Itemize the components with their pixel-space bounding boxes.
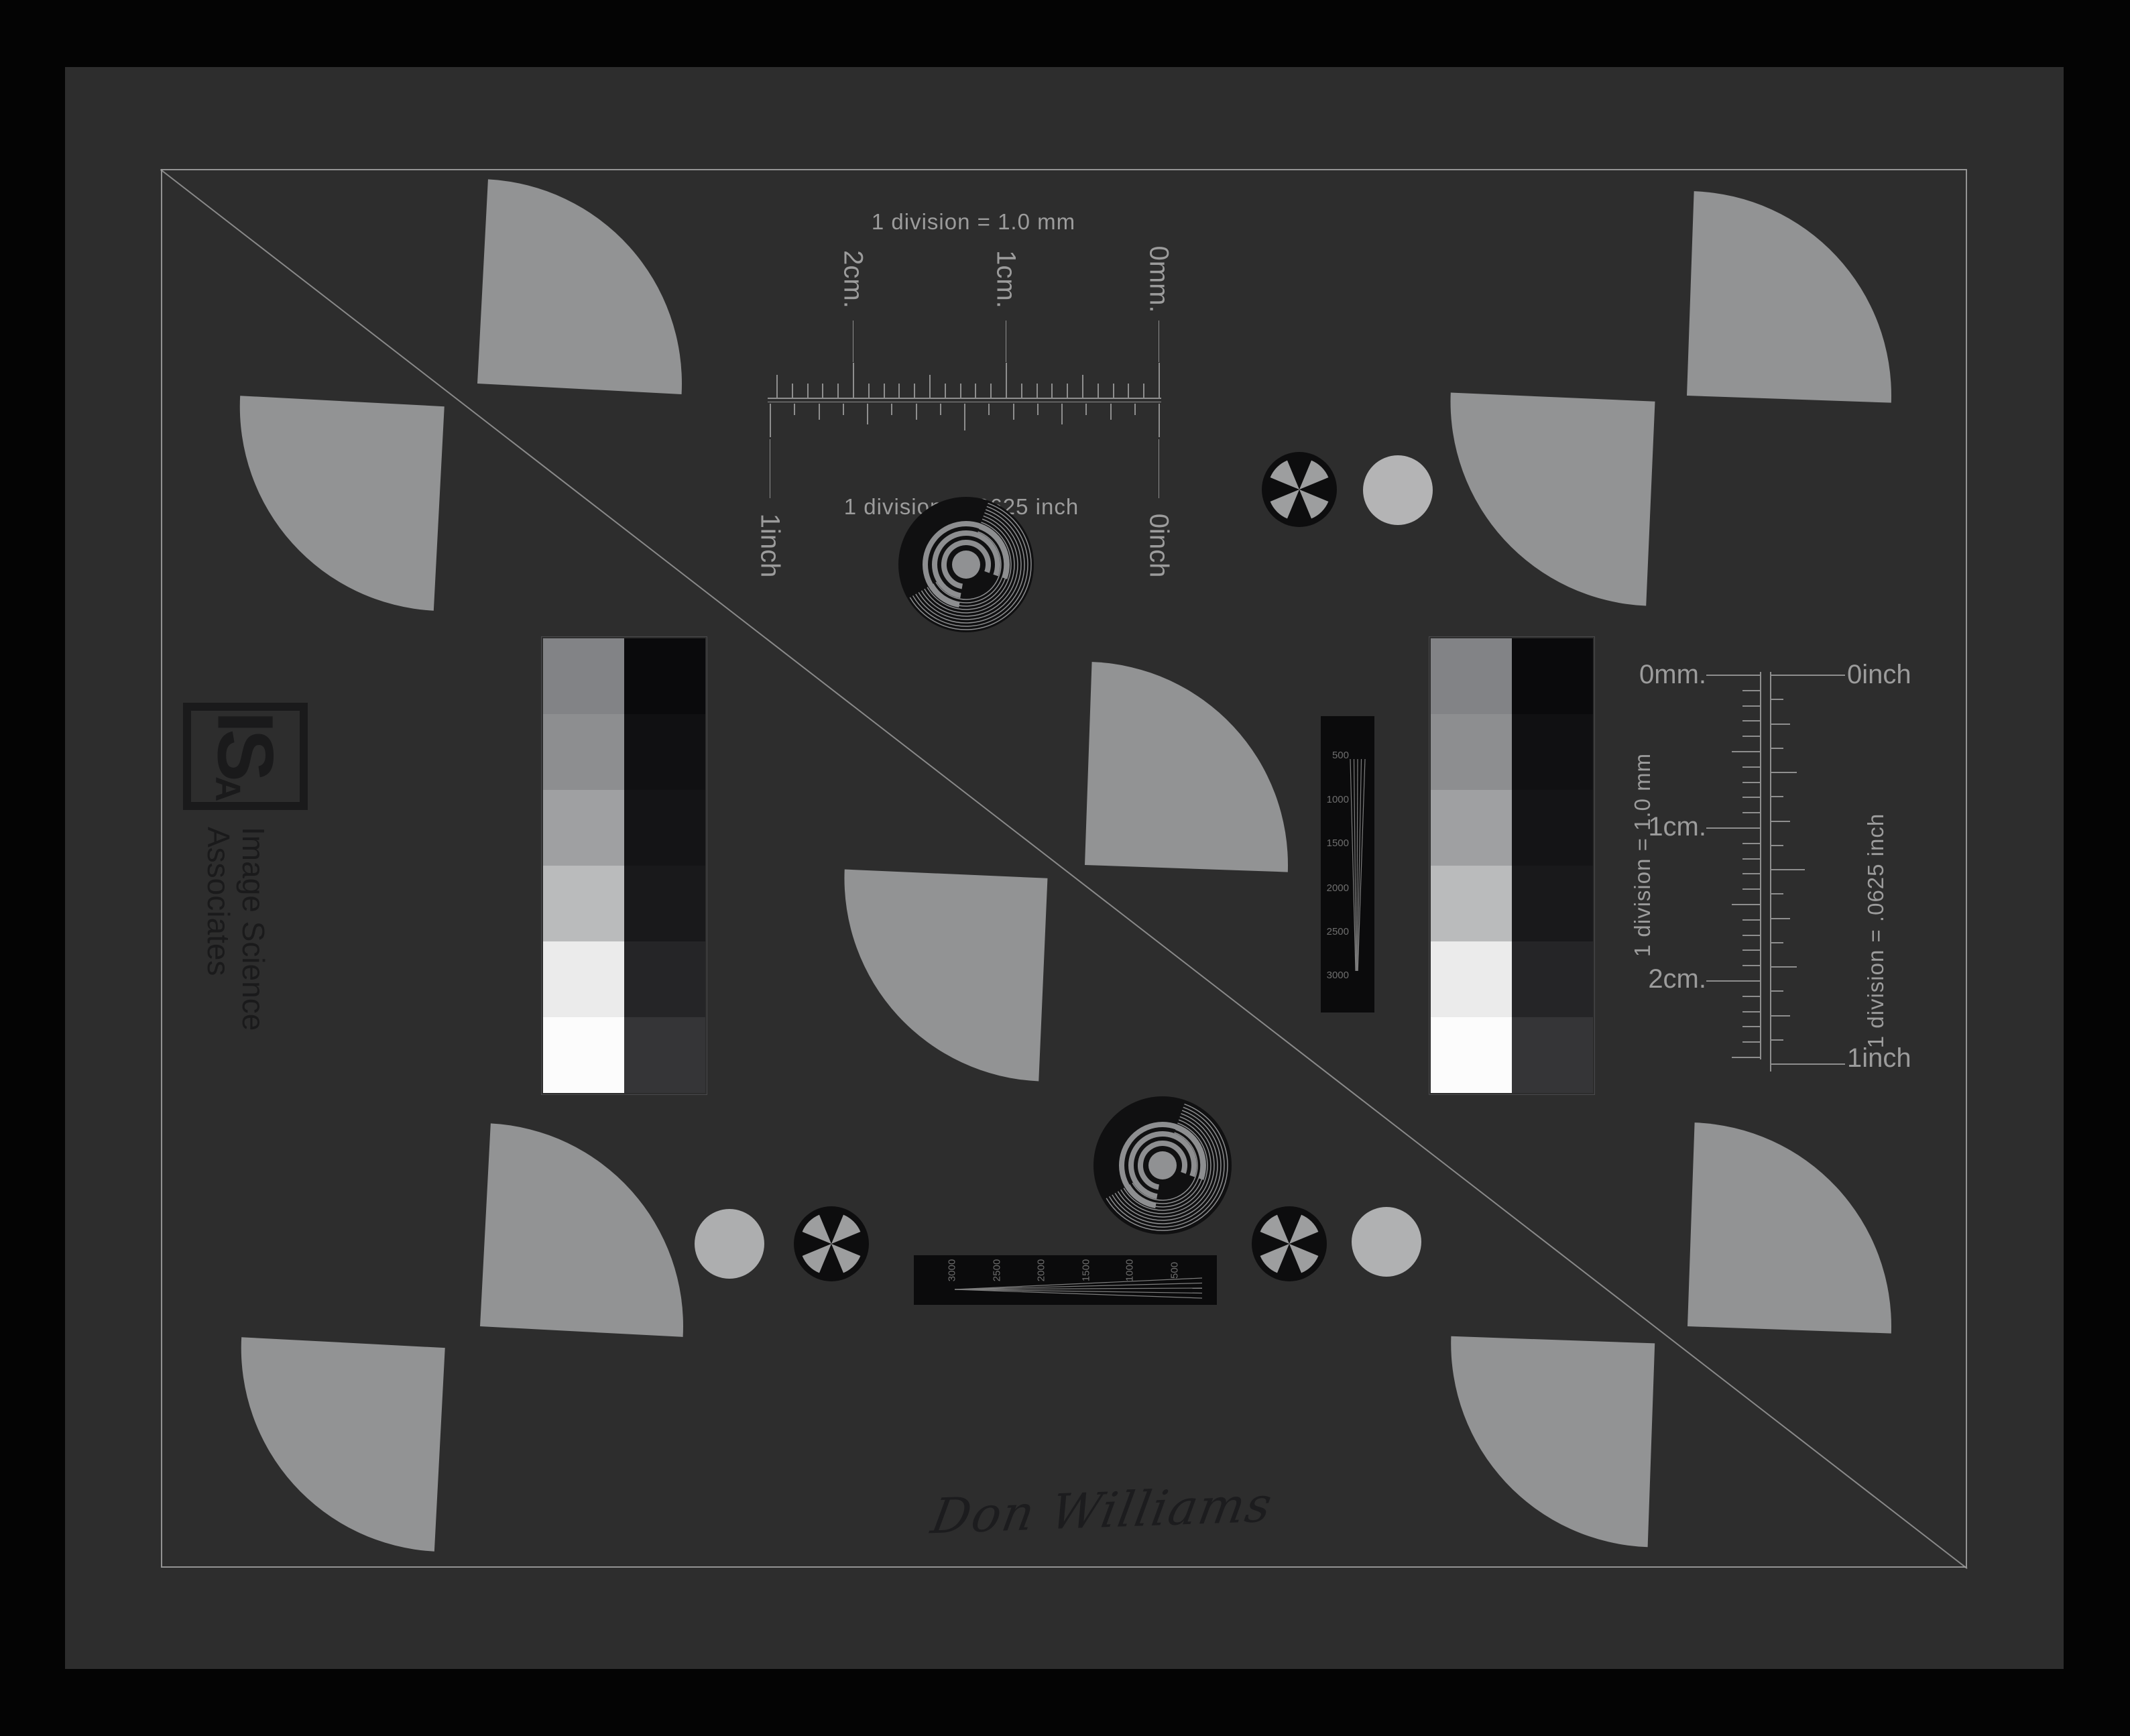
ruler-leader-line — [1159, 321, 1159, 362]
ruler-tick — [770, 404, 771, 437]
right-ruler-label-0mm: 0mm. — [1599, 660, 1706, 690]
ruler-tick — [1037, 404, 1039, 415]
grayscale-step — [543, 790, 624, 866]
ruler-tick — [1067, 384, 1068, 398]
ruler-tick — [1770, 796, 1783, 797]
ruler-baseline — [1760, 672, 1761, 1059]
ruler-leader-line — [1159, 439, 1159, 498]
ruler-tick — [1770, 675, 1845, 676]
ruler-tick — [794, 404, 795, 415]
ruler-tick — [945, 384, 946, 398]
ruler-tick — [1742, 797, 1760, 798]
ruler-tick — [868, 384, 870, 398]
ruler-leader-line — [1006, 321, 1006, 362]
gray-dot-target — [1363, 455, 1433, 525]
company-name-line1: Image Science — [236, 827, 271, 1035]
ruler-tick — [1110, 404, 1112, 420]
ruler-tick — [1770, 869, 1805, 870]
fan-shape — [229, 396, 445, 611]
ruler-baseline — [768, 402, 1161, 402]
ruler-tick — [843, 404, 844, 415]
top-ruler-label-0mm: 0mm. — [1144, 239, 1174, 320]
ruler-tick — [776, 375, 778, 398]
ruler-tick — [1706, 827, 1760, 829]
ruler-tick — [867, 404, 868, 424]
ruler-tick — [1742, 720, 1760, 721]
fan-shape — [1444, 1336, 1655, 1547]
ruler-tick — [1770, 1015, 1790, 1017]
right-ruler-caption-inch: 1 division = .0625 inch — [1863, 803, 1889, 1058]
ruler-tick — [1742, 965, 1760, 966]
ruler-tick — [1742, 766, 1760, 768]
ruler-tick — [1742, 935, 1760, 936]
grayscale-step — [543, 941, 624, 1017]
ruler-tick — [1770, 893, 1783, 894]
ruler-tick — [1770, 699, 1783, 700]
ruler-tick — [1061, 404, 1063, 424]
fan-shape — [1688, 1122, 1898, 1333]
top-ruler-label-0inch: 0inch — [1144, 502, 1174, 589]
sector-star-target — [792, 1205, 870, 1283]
isa-logo-initials: IS — [206, 711, 285, 778]
grayscale-step — [1431, 790, 1512, 866]
ruler-tick — [1742, 873, 1760, 874]
fan-shape — [836, 870, 1048, 1082]
ruler-tick — [1013, 404, 1014, 420]
ruler-tick — [807, 384, 809, 398]
grayscale-step — [1431, 714, 1512, 790]
ruler-tick — [884, 384, 885, 398]
ruler-tick — [1742, 919, 1760, 921]
gray-dot-target — [695, 1209, 764, 1279]
ruler-tick — [822, 384, 823, 398]
author-signature: Don Williams — [924, 1478, 1218, 1562]
ruler-tick — [837, 384, 839, 398]
ruler-tick — [1113, 384, 1114, 398]
ruler-tick — [1742, 1041, 1760, 1043]
ruler-tick — [891, 404, 892, 415]
ruler-tick — [1770, 990, 1783, 992]
ruler-tick — [1742, 736, 1760, 737]
grayscale-step — [624, 714, 705, 790]
resolution-bar-lines — [912, 1254, 1220, 1314]
calibration-target-scan: 1 division = 1.0 mm 2cm. 1cm. 0mm. 1 div… — [0, 0, 2130, 1736]
grayscale-step — [543, 1017, 624, 1093]
sector-star-target — [1250, 1205, 1328, 1283]
ruler-tick — [1742, 888, 1760, 890]
grayscale-step — [1512, 638, 1593, 714]
ruler-tick — [1742, 782, 1760, 783]
grayscale-step — [1512, 941, 1593, 1017]
fan-shape — [1085, 662, 1295, 872]
company-name-line2: Associates — [201, 827, 236, 1035]
top-ruler-caption-mm: 1 division = 1.0 mm — [806, 209, 1141, 235]
grayscale-step — [1512, 714, 1593, 790]
ruler-tick — [1742, 1026, 1760, 1027]
ruler-tick — [1742, 690, 1760, 691]
ruler-tick — [1770, 966, 1797, 968]
ruler-tick — [819, 404, 820, 420]
grayscale-step — [624, 790, 705, 866]
ruler-tick — [990, 384, 992, 398]
ruler-tick — [1021, 384, 1022, 398]
sector-star-target — [1260, 451, 1338, 528]
ruler-tick — [1742, 843, 1760, 844]
ruler-tick — [1770, 821, 1790, 822]
company-name: Image Science Associates — [201, 827, 271, 1035]
grayscale-step — [624, 638, 705, 714]
grayscale-step — [624, 866, 705, 941]
fan-shape — [480, 1123, 693, 1336]
top-ruler-label-2cm: 2cm. — [838, 239, 868, 320]
ruler-tick — [1742, 812, 1760, 813]
ruler-tick — [1742, 858, 1760, 860]
ruler-tick — [1742, 705, 1760, 707]
right-ruler-label-2cm: 2cm. — [1599, 964, 1706, 994]
ruler-tick — [1134, 404, 1136, 415]
ruler-leader-line — [853, 321, 853, 362]
ring-spiral-target — [895, 494, 1037, 636]
gray-dot-target — [1352, 1207, 1421, 1277]
top-ruler-label-1inch: 1inch — [755, 502, 785, 589]
grayscale-step — [1431, 941, 1512, 1017]
fan-shape — [1441, 392, 1655, 605]
ruler-tick — [1706, 980, 1760, 982]
ruler-tick — [1770, 942, 1783, 943]
ruler-tick — [1082, 375, 1083, 398]
ruler-tick — [1085, 404, 1087, 415]
ruler-tick — [1770, 724, 1790, 725]
right-ruler-label-0inch: 0inch — [1847, 660, 1961, 690]
grayscale-step — [1431, 866, 1512, 941]
ruler-tick — [975, 384, 976, 398]
ruler-tick — [988, 404, 990, 415]
ruler-tick — [960, 384, 961, 398]
ruler-tick — [1732, 751, 1760, 752]
ruler-tick — [1732, 904, 1760, 905]
grayscale-step — [624, 1017, 705, 1093]
grayscale-step — [543, 638, 624, 714]
ruler-tick — [916, 404, 917, 420]
ruler-tick — [1770, 772, 1797, 773]
ruler-tick — [1159, 363, 1160, 398]
ruler-tick — [1742, 996, 1760, 997]
ruler-tick — [1770, 845, 1783, 846]
ruler-tick — [929, 375, 931, 398]
grayscale-step — [543, 866, 624, 941]
ruler-tick — [792, 384, 793, 398]
ruler-tick — [1051, 384, 1053, 398]
ruler-baseline — [768, 398, 1161, 399]
ruler-tick — [853, 363, 854, 398]
ruler-tick — [1770, 748, 1783, 749]
ruler-tick — [1732, 1057, 1760, 1058]
isa-logo-sub-initial: A — [208, 776, 248, 802]
grayscale-step — [1512, 1017, 1593, 1093]
ruler-tick — [1770, 1039, 1783, 1041]
ruler-tick — [1742, 1011, 1760, 1012]
isa-logo-box: IS A — [183, 703, 308, 810]
ruler-tick — [1706, 675, 1760, 676]
fan-shape — [477, 179, 693, 394]
ruler-tick — [1742, 949, 1760, 951]
fan-shape — [231, 1337, 445, 1551]
ruler-tick — [940, 404, 941, 415]
isa-logo: IS A — [206, 711, 285, 801]
right-ruler-caption-mm: 1 division = 1.0 mm — [1630, 748, 1655, 962]
grayscale-step — [624, 941, 705, 1017]
grayscale-step — [543, 714, 624, 790]
ruler-leader-line — [770, 439, 770, 498]
ruler-tick — [1143, 384, 1144, 398]
ruler-tick — [1006, 363, 1007, 398]
ruler-tick — [1128, 384, 1129, 398]
ruler-tick — [1037, 384, 1038, 398]
ruler-tick — [1770, 918, 1790, 919]
resolution-bar-lines — [1314, 711, 1395, 1026]
fan-shape — [1687, 191, 1898, 402]
grayscale-step — [1431, 1017, 1512, 1093]
ruler-tick — [898, 384, 900, 398]
ruler-tick — [1159, 404, 1160, 437]
ring-spiral-target — [1090, 1093, 1235, 1238]
grayscale-step — [1512, 790, 1593, 866]
grayscale-step — [1431, 638, 1512, 714]
ruler-tick — [1098, 384, 1099, 398]
top-ruler-label-1cm: 1cm. — [991, 239, 1021, 320]
ruler-tick — [914, 384, 915, 398]
ruler-baseline — [1770, 672, 1771, 1072]
ruler-tick — [1770, 1063, 1845, 1065]
grayscale-step — [1512, 866, 1593, 941]
ruler-tick — [964, 404, 965, 430]
